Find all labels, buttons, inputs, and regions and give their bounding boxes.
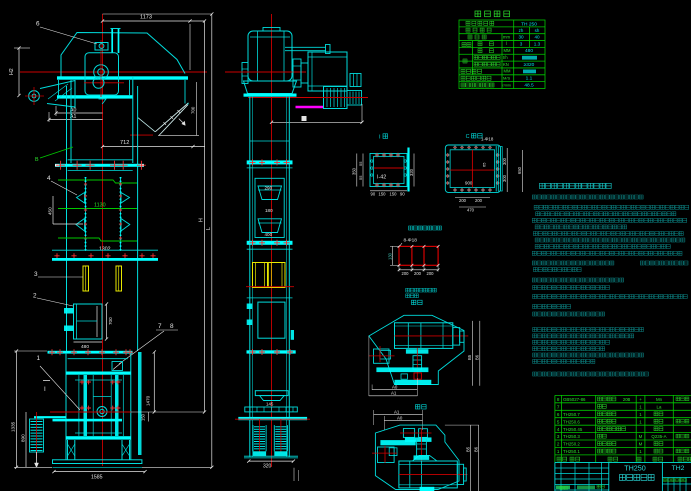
svg-text:480: 480 [525, 48, 533, 54]
svg-text:A1: A1 [394, 409, 400, 414]
svg-text:7: 7 [557, 404, 560, 409]
svg-text:1130: 1130 [94, 203, 106, 209]
svg-text:B6: B6 [475, 354, 480, 360]
svg-text:B: B [35, 157, 39, 163]
svg-text:55: 55 [358, 175, 363, 180]
svg-text:A0: A0 [397, 415, 403, 420]
svg-text:M: M [639, 442, 643, 447]
svg-text:200: 200 [402, 271, 410, 276]
svg-text:MM: MM [504, 69, 511, 74]
svg-text:A1: A1 [391, 391, 397, 396]
svg-text:200: 200 [414, 271, 422, 276]
svg-text:GB5027-86: GB5027-86 [563, 397, 586, 402]
svg-text:r/min: r/min [503, 83, 511, 87]
svg-text:48.5: 48.5 [524, 82, 534, 88]
svg-text:4: 4 [557, 427, 560, 432]
svg-text:M: M [639, 434, 643, 439]
svg-text:200: 200 [475, 198, 483, 203]
svg-text:150: 150 [379, 192, 387, 197]
svg-text:A0: A0 [392, 384, 398, 389]
svg-text:1: 1 [557, 449, 560, 454]
svg-text:1.3: 1.3 [534, 41, 541, 46]
svg-text:2: 2 [33, 293, 37, 300]
svg-text:TH250.3: TH250.3 [563, 434, 580, 439]
svg-text:M/S: M/S [503, 76, 510, 81]
svg-text:300: 300 [502, 174, 507, 182]
svg-text:200: 200 [427, 271, 435, 276]
svg-text:zh: zh [519, 28, 524, 33]
svg-text:650: 650 [517, 166, 522, 174]
svg-text:180: 180 [265, 208, 273, 213]
svg-text:l: l [506, 41, 507, 46]
svg-text:B6: B6 [474, 446, 479, 452]
svg-text:Q235-A: Q235-A [651, 434, 666, 439]
svg-text:1585: 1585 [91, 475, 103, 481]
svg-text:TH250.2: TH250.2 [563, 442, 580, 447]
svg-text:I-42: I-42 [377, 175, 386, 181]
svg-text:I: I [44, 386, 46, 393]
svg-text:KN: KN [503, 62, 509, 67]
svg-text:145: 145 [266, 402, 274, 407]
svg-text:350: 350 [352, 167, 357, 175]
svg-text:300: 300 [502, 157, 507, 165]
svg-text:H: H [199, 218, 205, 222]
svg-text:700: 700 [191, 106, 196, 114]
svg-text:sh: sh [535, 28, 540, 33]
svg-text:30: 30 [518, 35, 524, 40]
svg-text:3: 3 [557, 434, 560, 439]
svg-text:700: 700 [108, 317, 113, 325]
svg-text:890: 890 [21, 434, 26, 442]
svg-text:65: 65 [482, 162, 487, 167]
svg-text:≥320: ≥320 [524, 62, 535, 68]
svg-text:320: 320 [409, 168, 414, 176]
svg-text:4: 4 [47, 175, 51, 182]
svg-text:6: 6 [36, 21, 40, 28]
svg-text:TH 250: TH 250 [521, 22, 537, 28]
svg-text:H2: H2 [9, 68, 15, 75]
svg-text:TH250.45: TH250.45 [563, 427, 583, 432]
svg-text:3: 3 [34, 271, 38, 278]
svg-text:C: C [466, 134, 470, 140]
svg-text:L: L [206, 227, 212, 230]
svg-text:7: 7 [158, 323, 162, 330]
svg-text:TH250.6: TH250.6 [563, 419, 580, 424]
svg-text:t/h: t/h [503, 55, 508, 60]
svg-text:8: 8 [557, 397, 560, 402]
svg-text:55: 55 [358, 161, 363, 166]
svg-text:La: La [657, 404, 662, 409]
svg-text:712: 712 [120, 140, 129, 146]
svg-text:TH250.1: TH250.1 [563, 449, 580, 454]
svg-text:130: 130 [388, 252, 393, 260]
svg-text:mm: mm [503, 34, 510, 39]
svg-text:150: 150 [141, 413, 146, 421]
svg-text:1-Φ18: 1-Φ18 [481, 137, 494, 142]
svg-text:TH250: TH250 [624, 464, 646, 473]
svg-text:B5: B5 [466, 446, 471, 452]
svg-text:900: 900 [465, 181, 473, 186]
svg-text:470: 470 [467, 208, 475, 213]
svg-text:200: 200 [459, 198, 467, 203]
svg-text:90: 90 [400, 192, 405, 197]
svg-text:400: 400 [265, 232, 273, 237]
svg-text:2: 2 [557, 442, 560, 447]
svg-text:1: 1 [37, 355, 41, 362]
svg-text:B5: B5 [467, 354, 472, 360]
svg-text:MM: MM [504, 48, 511, 53]
svg-text:450: 450 [48, 207, 53, 215]
svg-text:8-Φ18: 8-Φ18 [404, 238, 418, 244]
svg-text:290: 290 [265, 186, 273, 191]
svg-text:8: 8 [170, 323, 174, 330]
svg-text:1173: 1173 [140, 15, 152, 21]
svg-text:+: + [639, 397, 642, 402]
svg-text:TH2: TH2 [672, 465, 685, 472]
svg-text:1.1: 1.1 [526, 76, 533, 82]
svg-text:20B: 20B [623, 397, 631, 402]
svg-text:480: 480 [81, 344, 89, 350]
svg-text:1470: 1470 [146, 395, 151, 406]
svg-text:40: 40 [534, 35, 540, 40]
svg-text:150: 150 [390, 192, 398, 197]
svg-text:1335: 1335 [11, 421, 16, 432]
svg-text:1302: 1302 [99, 247, 111, 253]
svg-text:320: 320 [263, 464, 272, 470]
svg-text:Mn: Mn [656, 397, 663, 402]
svg-text:TH250.7: TH250.7 [563, 412, 580, 417]
svg-text:5: 5 [557, 419, 560, 424]
svg-text:6: 6 [557, 412, 560, 417]
svg-text:3: 3 [520, 41, 523, 46]
svg-text:90: 90 [371, 192, 376, 197]
